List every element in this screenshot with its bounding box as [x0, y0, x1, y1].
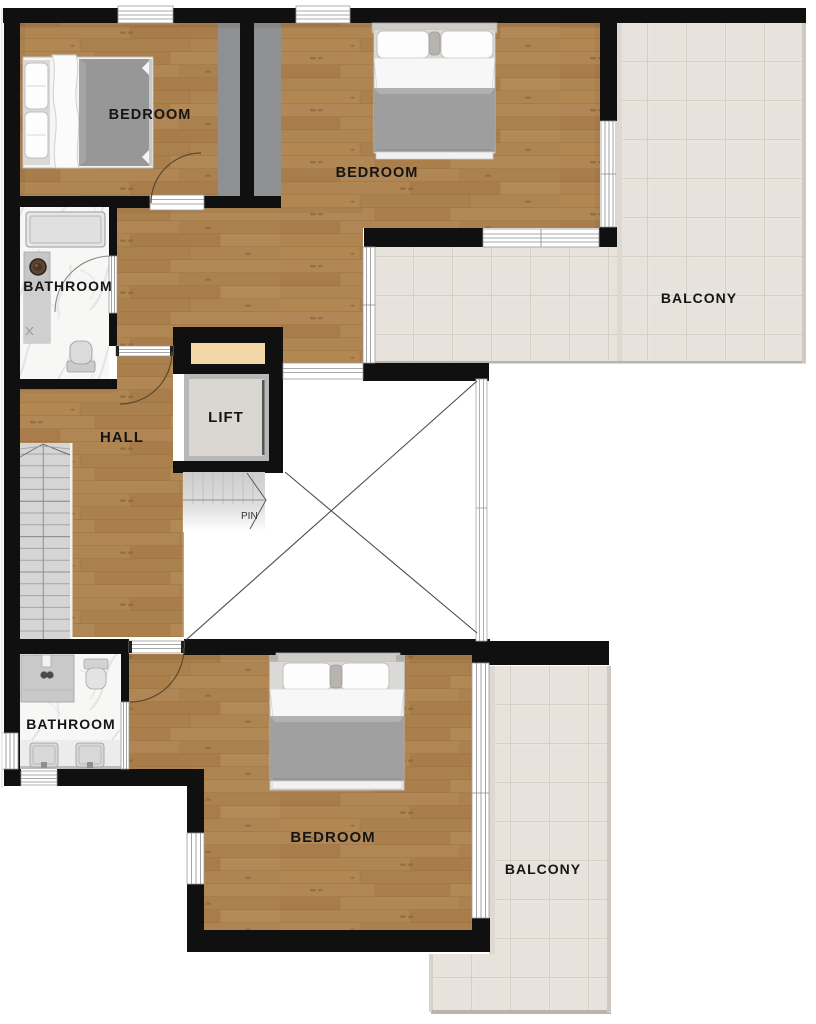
svg-text:HALL: HALL — [100, 429, 144, 446]
svg-text:BATHROOM: BATHROOM — [23, 278, 112, 294]
svg-text:BATHROOM: BATHROOM — [26, 716, 115, 732]
svg-text:BALCONY: BALCONY — [661, 290, 737, 306]
svg-text:LIFT: LIFT — [208, 409, 244, 426]
svg-text:BEDROOM: BEDROOM — [109, 107, 192, 123]
svg-text:BEDROOM: BEDROOM — [336, 165, 419, 181]
svg-text:PIN: PIN — [241, 511, 258, 522]
svg-text:BEDROOM: BEDROOM — [290, 829, 375, 846]
svg-text:BALCONY: BALCONY — [505, 861, 581, 877]
